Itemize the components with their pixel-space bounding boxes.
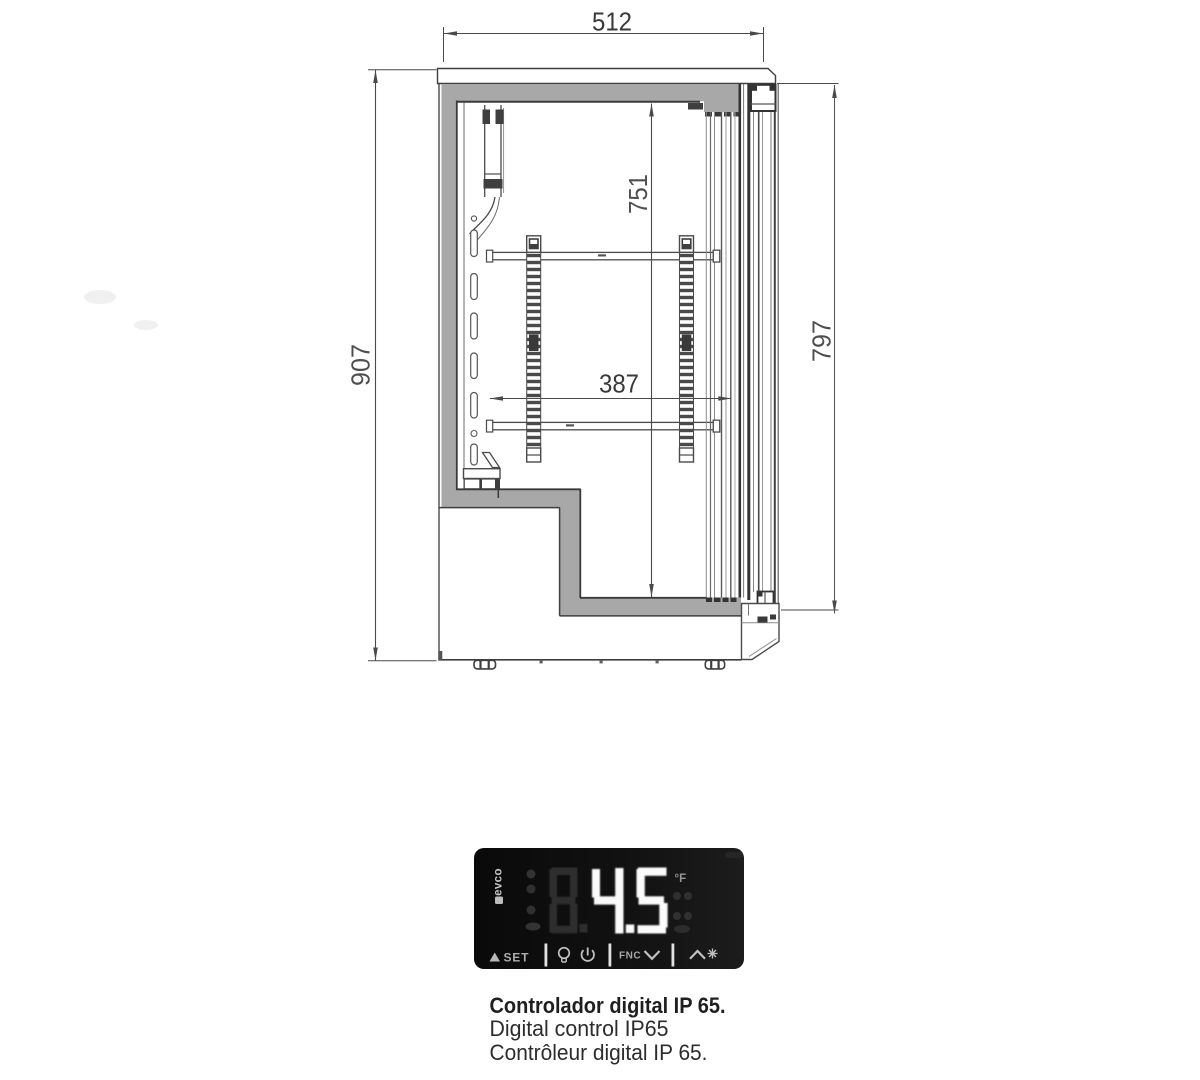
svg-text:Contrôleur digital IP 65.: Contrôleur digital IP 65. [490,1040,708,1065]
svg-text:387: 387 [599,369,639,399]
svg-text:evco: evco [493,868,505,896]
svg-text:512: 512 [592,7,632,37]
svg-text:FNC: FNC [619,951,641,962]
svg-text:°F: °F [675,873,687,885]
svg-text:Digital control IP65: Digital control IP65 [490,1016,669,1041]
svg-text:907: 907 [346,344,376,386]
svg-text:Controlador digital IP 65.: Controlador digital IP 65. [490,993,726,1018]
svg-text:SET: SET [504,951,530,965]
svg-text:751: 751 [623,174,653,214]
svg-text:797: 797 [807,320,837,362]
